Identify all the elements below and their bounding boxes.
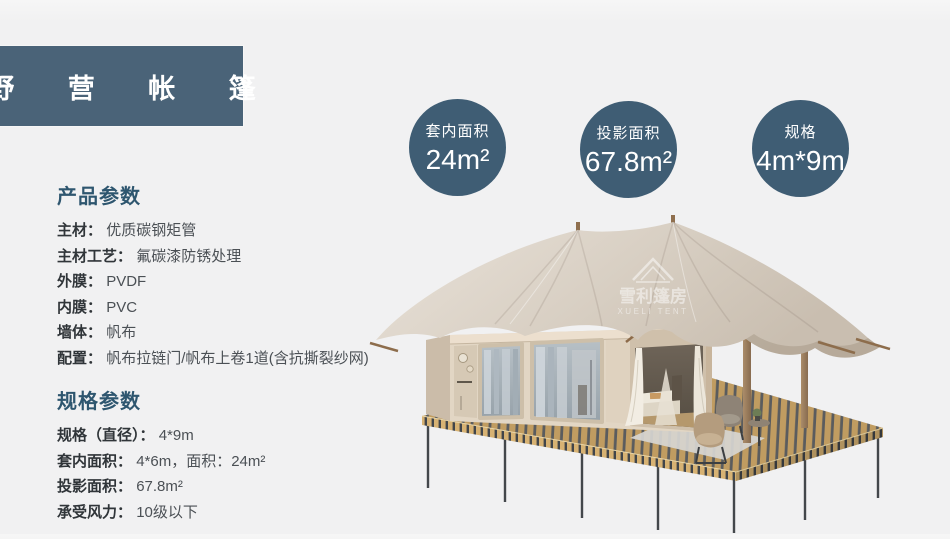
param-label: 墙体： (57, 324, 102, 341)
param-value: 帆布 (106, 324, 136, 341)
param-label: 配置： (57, 350, 102, 367)
product-title-banner: 野 营 帐 篷 (0, 46, 243, 126)
param-row: 墙体： 帆布 (57, 320, 387, 346)
wall-decor (454, 345, 477, 418)
param-value: 4*6m，面积：24m² (136, 453, 265, 470)
param-row: 规格（直径）： 4*9m (57, 423, 387, 449)
param-label: 套内面积： (57, 453, 132, 470)
section-heading: 规格参数 (57, 385, 387, 414)
param-label: 规格（直径）： (57, 427, 155, 444)
product-params-section: 产品参数 主材： 优质碳钢矩管 主材工艺： 氟碳漆防锈处理 外膜： PVDF 内… (57, 180, 387, 371)
param-value: 帆布拉链门/帆布上卷1道(含抗撕裂纱网) (106, 350, 369, 367)
param-row: 套内面积： 4*6m，面积：24m² (57, 449, 387, 475)
param-value: 10级以下 (136, 504, 198, 521)
param-label: 主材工艺： (57, 248, 132, 265)
stat-label: 套内面积 (425, 120, 489, 141)
param-row: 承受风力： 10级以下 (57, 500, 387, 526)
tent-cabin (426, 321, 712, 436)
window-1 (480, 344, 522, 418)
watermark-en: XUELI TENT (617, 307, 688, 316)
param-row: 主材工艺： 氟碳漆防锈处理 (57, 244, 387, 270)
param-label: 内膜： (57, 299, 102, 316)
stat-circle-projected-area: 投影面积 67.8m² (580, 101, 677, 198)
param-row: 外膜： PVDF (57, 269, 387, 295)
param-row: 配置： 帆布拉链门/帆布上卷1道(含抗撕裂纱网) (57, 346, 387, 372)
param-row: 主材： 优质碳钢矩管 (57, 218, 387, 244)
stat-label: 规格 (784, 121, 816, 142)
param-label: 外膜： (57, 273, 102, 290)
param-label: 投影面积： (57, 478, 132, 495)
param-value: PVC (106, 299, 137, 316)
section-heading: 产品参数 (57, 180, 387, 209)
stat-value: 67.8m² (585, 146, 672, 178)
tent-render-svg: 雪利篷房 XUELI TENT (350, 200, 950, 534)
param-value: 4*9m (159, 427, 194, 444)
param-value: 67.8m² (136, 478, 183, 495)
watermark-cn: 雪利篷房 (619, 286, 687, 306)
param-value: 氟碳漆防锈处理 (136, 248, 241, 265)
param-row: 投影面积： 67.8m² (57, 474, 387, 500)
stat-value: 24m² (426, 144, 490, 176)
stat-label: 投影面积 (596, 122, 660, 143)
window-2 (532, 340, 602, 422)
tent-render-image: 雪利篷房 XUELI TENT (350, 200, 950, 534)
param-value: PVDF (106, 273, 146, 290)
param-label: 主材： (57, 222, 102, 239)
stat-value: 4m*9m (756, 145, 845, 177)
stat-circle-size: 规格 4m*9m (752, 100, 849, 197)
wood-post-front (743, 336, 751, 443)
param-label: 承受风力： (57, 504, 132, 521)
param-row: 内膜： PVC (57, 295, 387, 321)
stat-circle-inner-area: 套内面积 24m² (409, 99, 506, 196)
page-background: { "page": { "title": "野 营 帐 篷" }, "stats… (0, 0, 950, 534)
spec-params-section: 规格参数 规格（直径）： 4*9m 套内面积： 4*6m，面积：24m² 投影面… (57, 385, 387, 525)
page-title: 野 营 帐 篷 (0, 67, 279, 106)
cabin-side-wall (426, 335, 450, 421)
param-value: 优质碳钢矩管 (106, 222, 196, 239)
